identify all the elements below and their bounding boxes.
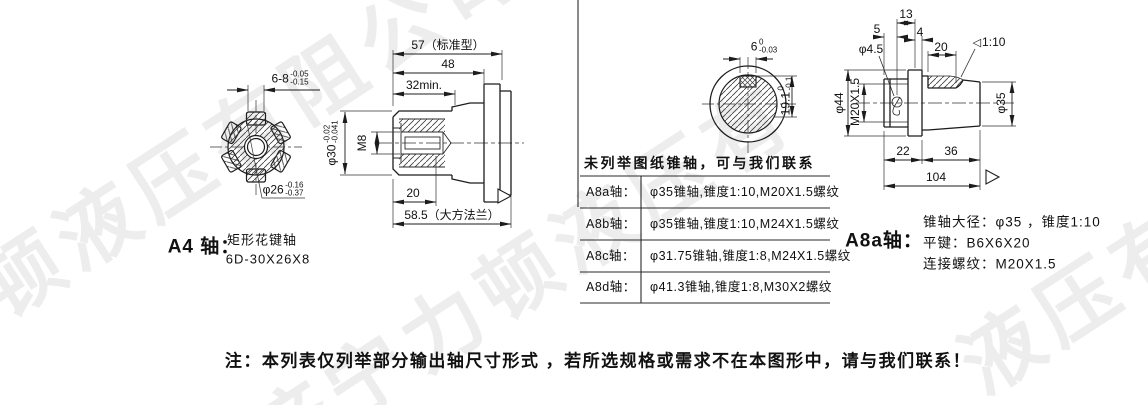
a8a-spec-key: 平键：B6X6X20 <box>923 236 1031 250</box>
a8a-spec-thread: 连接螺纹：M20X1.5 <box>923 257 1057 271</box>
a4-shaft-spline-code: 6D-30X26X8 <box>226 253 310 266</box>
dim-key-height-label: 19.1 0-0.1 <box>778 77 793 116</box>
table-row-label: A8a轴： <box>586 186 636 199</box>
table-row-spec: φ35锥轴,锥度1:10,M20X1.5螺纹 <box>650 186 839 199</box>
table-row-spec: φ35锥轴,锥度1:10,M24X1.5螺纹 <box>650 218 839 231</box>
dim-20-label: 20 <box>406 187 419 199</box>
table-row-label: A8d轴： <box>586 281 636 294</box>
a8a-spec-taper: 锥轴大径：φ35 ，锥度1:10 <box>923 215 1101 229</box>
dim-m20-label: M20X1.5 <box>849 78 861 126</box>
table-row-label: A8c轴： <box>586 250 635 263</box>
dim-57-label: 57（标准型） <box>411 39 484 51</box>
dim-48-label: 48 <box>441 58 454 70</box>
table-row-spec: φ41.3锥轴,锥度1:8,M30X2螺纹 <box>650 281 832 294</box>
table-row-spec: φ31.75锥轴,锥度1:8,M24X1.5螺纹 <box>650 250 851 263</box>
dim-20-keyway-label: 20 <box>934 41 947 53</box>
finish-flag-icon <box>498 189 511 203</box>
dim-58-5-label: 58.5（大方法兰） <box>404 209 499 221</box>
dim-22-label: 22 <box>896 145 909 157</box>
dim-d35-label: φ35 <box>995 92 1007 113</box>
dim-d26-label: φ26 -0.16-0.37 <box>263 182 304 197</box>
dim-32min-label: 32min. <box>406 79 442 91</box>
dim-d4-5-label: φ4.5 <box>859 43 883 55</box>
dim-spline-slot-label: 6-8 -0.05-0.15 <box>271 71 308 86</box>
taper-ratio-label: ◁ 1:10 <box>973 36 1006 48</box>
table-row-label: A8b轴： <box>586 218 636 231</box>
dim-m8-label: M8 <box>356 135 368 152</box>
dim-d44-label: φ44 <box>833 92 845 113</box>
a4-shaft-type: 矩形花键轴 <box>227 234 297 247</box>
drawing-sheet: 顿液压有阻公司 济宁力顿液压有 液压有阻公司 <box>0 0 1148 405</box>
dim-13-label: 13 <box>899 8 912 20</box>
dim-36-label: 36 <box>944 145 957 157</box>
dim-104-label: 104 <box>926 171 946 183</box>
taper-shaft-note: 未列举图纸锥轴，可与我们联系 <box>584 156 815 170</box>
a8a-shaft-title: A8a轴： <box>845 232 923 251</box>
drawing-canvas <box>0 0 1148 405</box>
dim-5-label: 5 <box>874 23 881 35</box>
taper-symbol-icon: ◁ <box>973 37 981 48</box>
finish-flag-icon <box>986 170 999 184</box>
footer-note: 注：本列表仅列举部分输出轴尺寸形式 ，若所选规格或需求不在本图形中，请与我们联系… <box>225 353 971 370</box>
dim-key-width-label: 6 0-0.03 <box>751 39 777 54</box>
dim-d30-label: φ30 -0.02-0.041 <box>324 120 339 165</box>
dim-4-label: 4 <box>917 26 924 38</box>
